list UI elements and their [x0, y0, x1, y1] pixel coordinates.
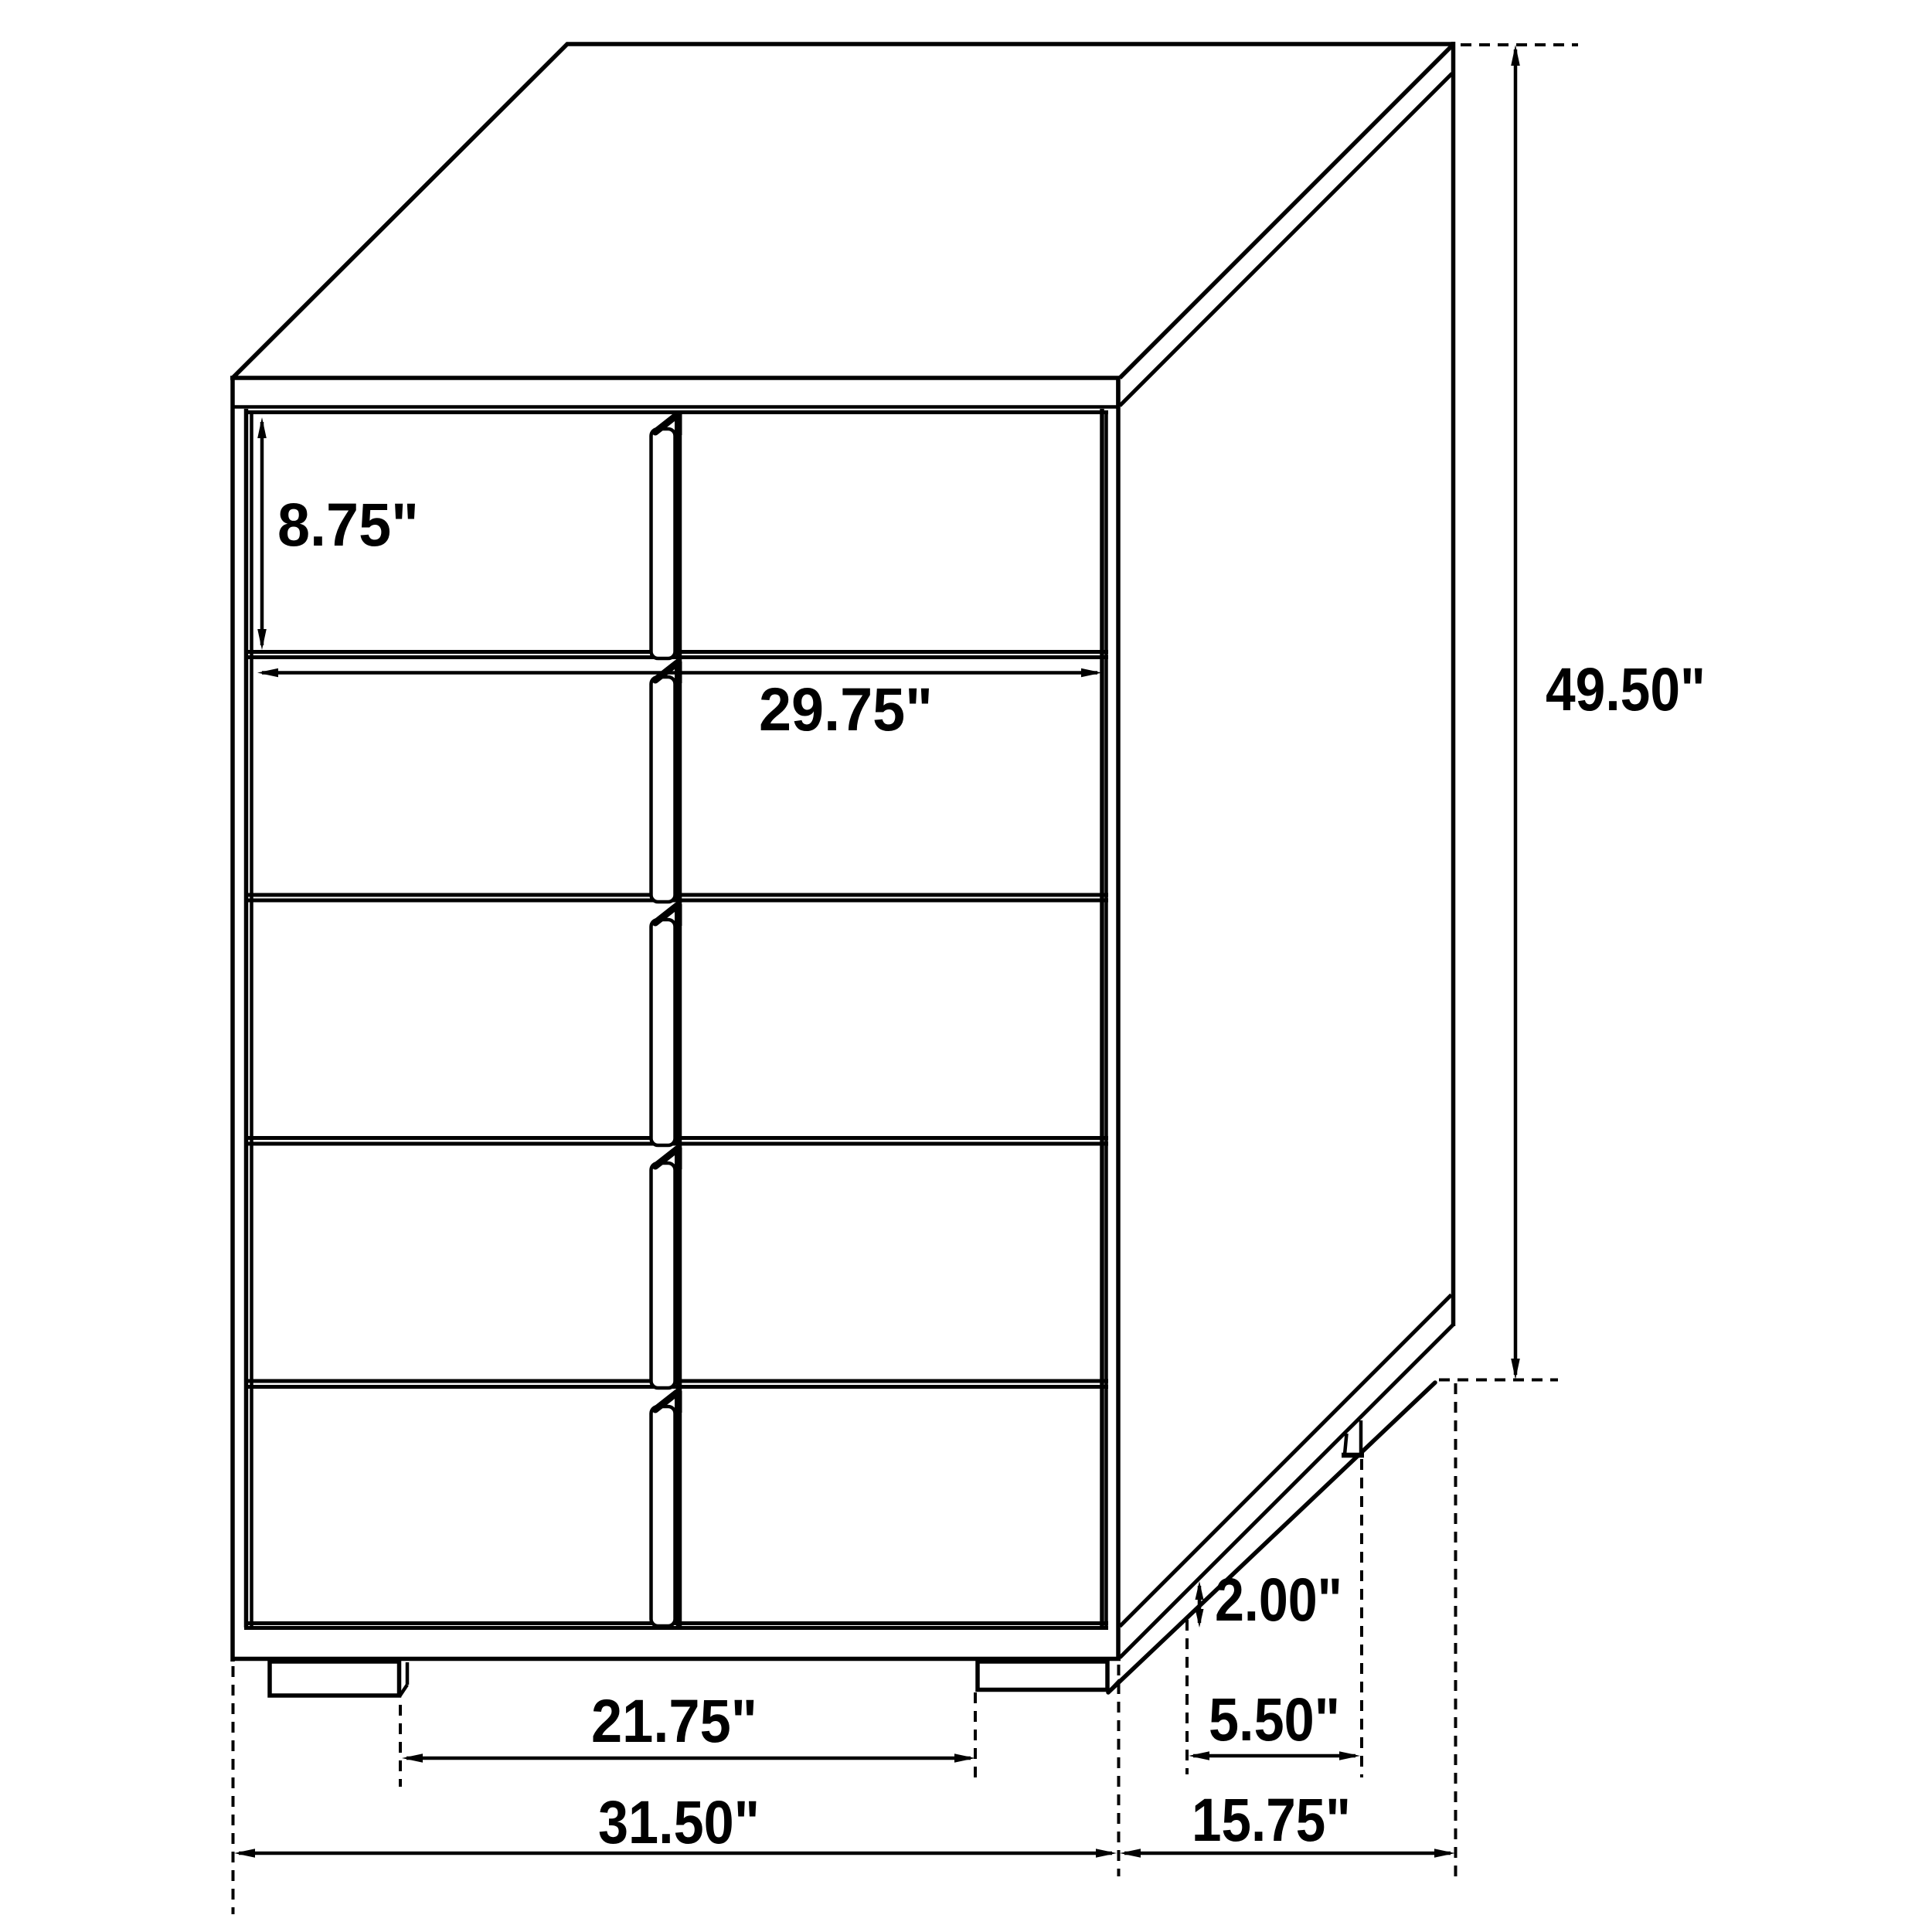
svg-text:29.75": 29.75": [759, 675, 933, 743]
svg-text:15.75": 15.75": [1192, 1785, 1351, 1854]
svg-text:49.50": 49.50": [1546, 655, 1706, 723]
svg-text:31.50": 31.50": [598, 1787, 760, 1856]
svg-text:21.75": 21.75": [591, 1686, 757, 1755]
svg-text:8.75": 8.75": [277, 490, 419, 559]
svg-text:2.00": 2.00": [1215, 1565, 1342, 1634]
svg-text:5.50": 5.50": [1209, 1685, 1340, 1753]
